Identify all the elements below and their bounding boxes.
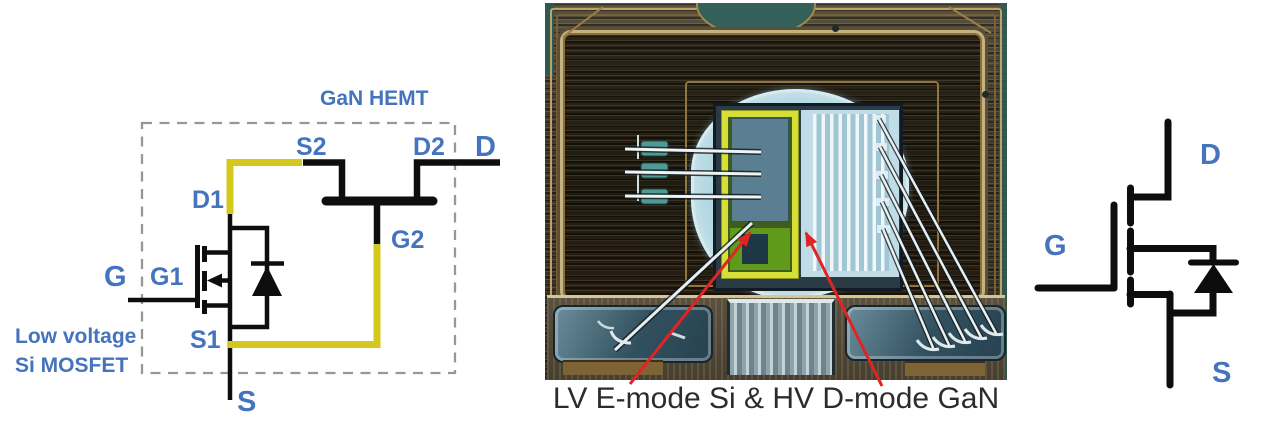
gan-die-fingers [813, 114, 889, 271]
node-label-d2: D2 [413, 135, 445, 160]
bond-pad-left [553, 305, 713, 363]
wire-g2-s1 [228, 244, 377, 345]
photo-caption: LV E-mode Si & HV D-mode GaN [545, 384, 1007, 414]
node-label-g1: G1 [150, 265, 183, 290]
si-die-pad [731, 118, 789, 222]
body-arrow [207, 274, 222, 288]
diode-anode-lead [1170, 291, 1213, 313]
node-label-g2: G2 [391, 228, 424, 253]
terminal-label-d-right: D [1200, 141, 1221, 170]
rivet-dot [982, 91, 989, 98]
si-mosfet-symbol [128, 213, 284, 400]
hemt-drain-lead [417, 163, 500, 200]
drain-lead [1132, 122, 1168, 197]
lead-strip-left [563, 360, 663, 375]
si-die-bottom-pad [730, 228, 790, 270]
wire-d1-s2 [230, 163, 302, 215]
body-diode [1194, 264, 1233, 293]
figure-canvas: LV E-mode Si & HV D-mode GaN [0, 0, 1264, 447]
node-label-s2: S2 [296, 135, 327, 160]
terminal-label-g: G [104, 263, 127, 292]
body-branch [1130, 249, 1213, 263]
die-photo [545, 3, 1007, 380]
terminal-label-s-right: S [1212, 359, 1231, 388]
hemt-source-lead [303, 163, 342, 200]
box-label-gan-hemt: GaN HEMT [320, 88, 429, 109]
cascode-wires-yellow [228, 163, 377, 345]
terminal-label-s: S [237, 388, 256, 417]
node-label-d1: D1 [192, 188, 224, 213]
center-lead-tab [727, 299, 835, 375]
terminal-label-d: D [475, 133, 496, 162]
si-die-bond-slot [742, 234, 768, 264]
si-die [721, 110, 799, 279]
gan-die [799, 110, 899, 277]
node-label-s1: S1 [190, 328, 221, 353]
device-label-line1: Low voltage [15, 326, 136, 347]
bond-pad-right [845, 305, 1006, 361]
rivet-dot [832, 25, 839, 32]
body-diode [252, 266, 282, 296]
device-label-line2: Si MOSFET [15, 355, 128, 376]
body-diode-branch [228, 228, 267, 327]
terminal-label-g-right: G [1044, 232, 1067, 261]
lead-strip-right [905, 361, 985, 376]
